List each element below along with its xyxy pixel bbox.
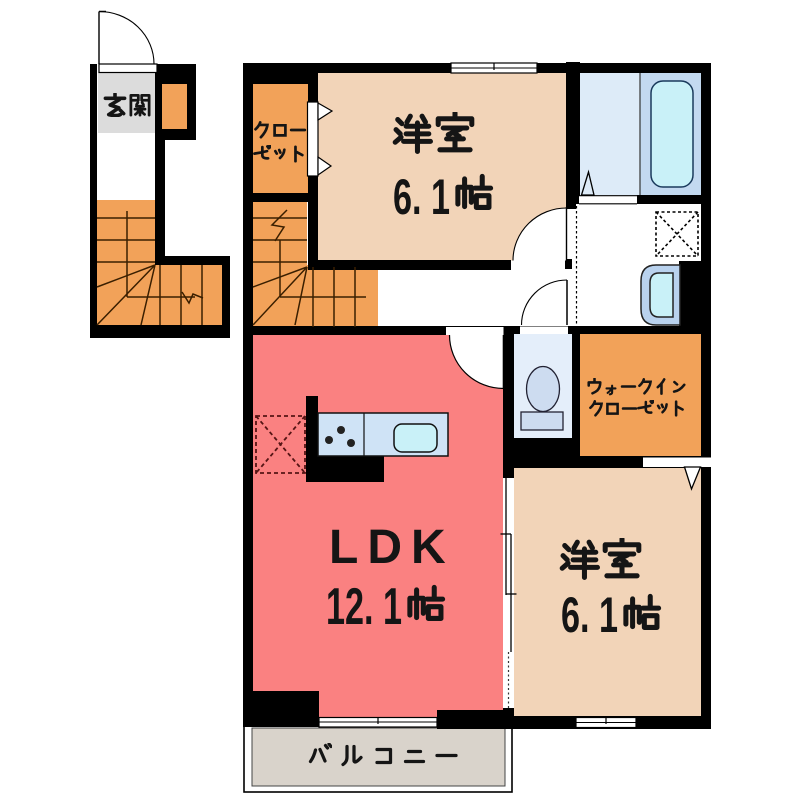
svg-text:6. 1: 6. 1 (561, 587, 618, 643)
svg-text:6. 1: 6. 1 (393, 169, 450, 225)
svg-text:12. 1: 12. 1 (326, 578, 402, 636)
svg-text:LDK: LDK (329, 521, 455, 574)
